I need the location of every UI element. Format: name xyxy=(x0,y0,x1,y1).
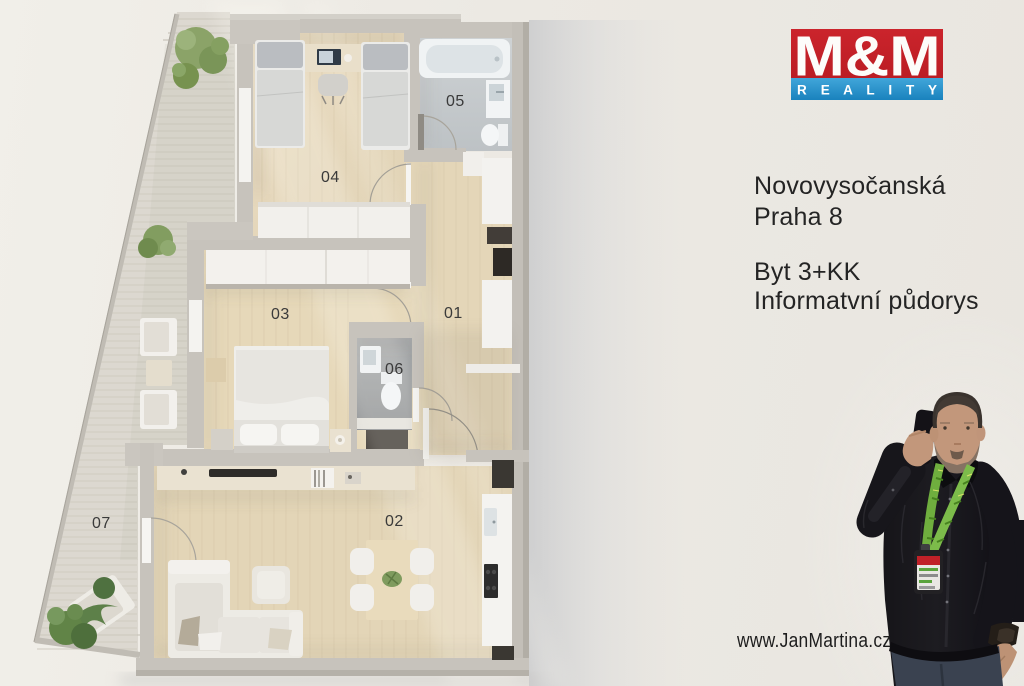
svg-text:R E A L I T Y: R E A L I T Y xyxy=(797,83,937,98)
svg-text:M&M: M&M xyxy=(794,29,941,78)
